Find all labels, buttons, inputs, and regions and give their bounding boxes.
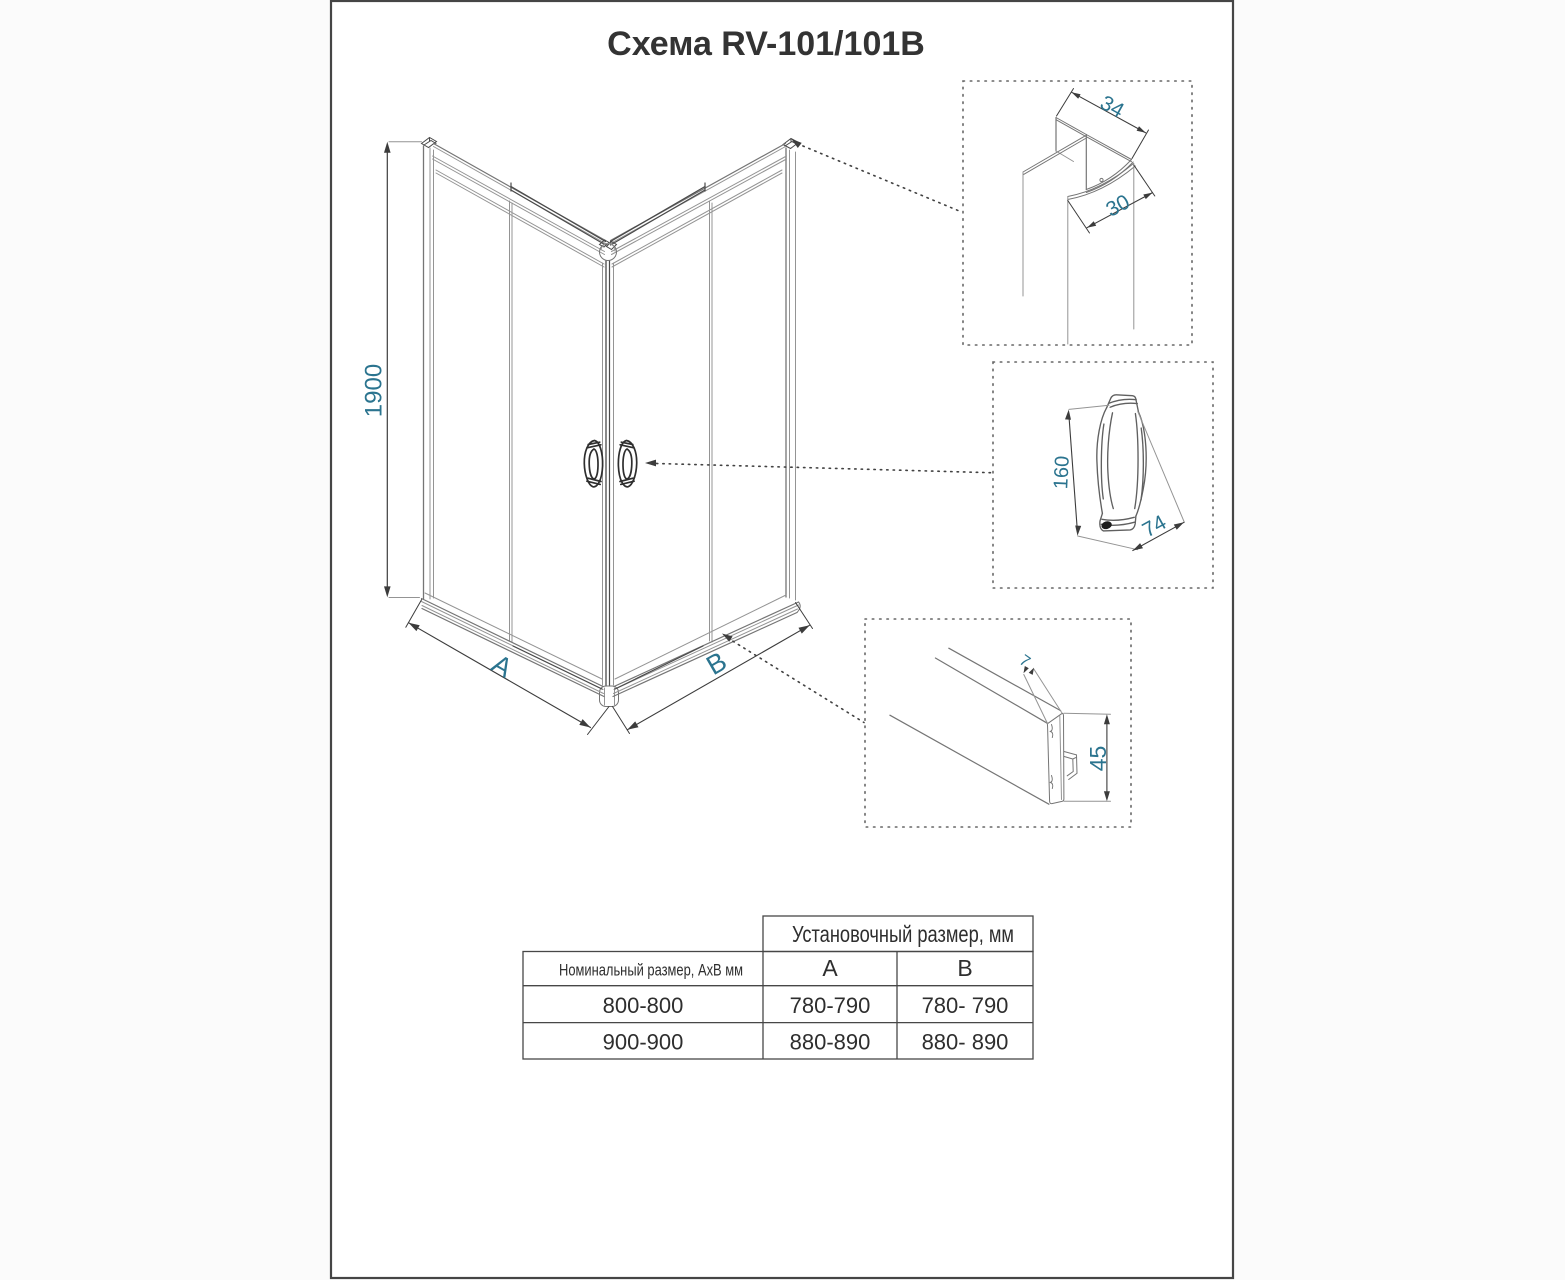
svg-text:Установочный размер, мм: Установочный размер, мм — [792, 921, 1014, 947]
svg-text:1900: 1900 — [361, 364, 388, 417]
svg-text:160: 160 — [1050, 455, 1074, 489]
svg-text:780-790: 780-790 — [790, 993, 871, 1018]
svg-text:880-890: 880-890 — [790, 1030, 871, 1055]
svg-text:880- 890: 880- 890 — [922, 1030, 1009, 1055]
svg-text:Схема RV-101/101B: Схема RV-101/101B — [607, 25, 925, 63]
svg-text:В: В — [957, 955, 972, 981]
svg-text:800-800: 800-800 — [603, 993, 684, 1018]
svg-text:780- 790: 780- 790 — [922, 993, 1009, 1018]
svg-text:А: А — [822, 955, 838, 981]
svg-text:Номинальный размер, АхВ мм: Номинальный размер, АхВ мм — [559, 962, 743, 980]
svg-text:45: 45 — [1085, 746, 1111, 772]
svg-text:900-900: 900-900 — [603, 1030, 684, 1055]
